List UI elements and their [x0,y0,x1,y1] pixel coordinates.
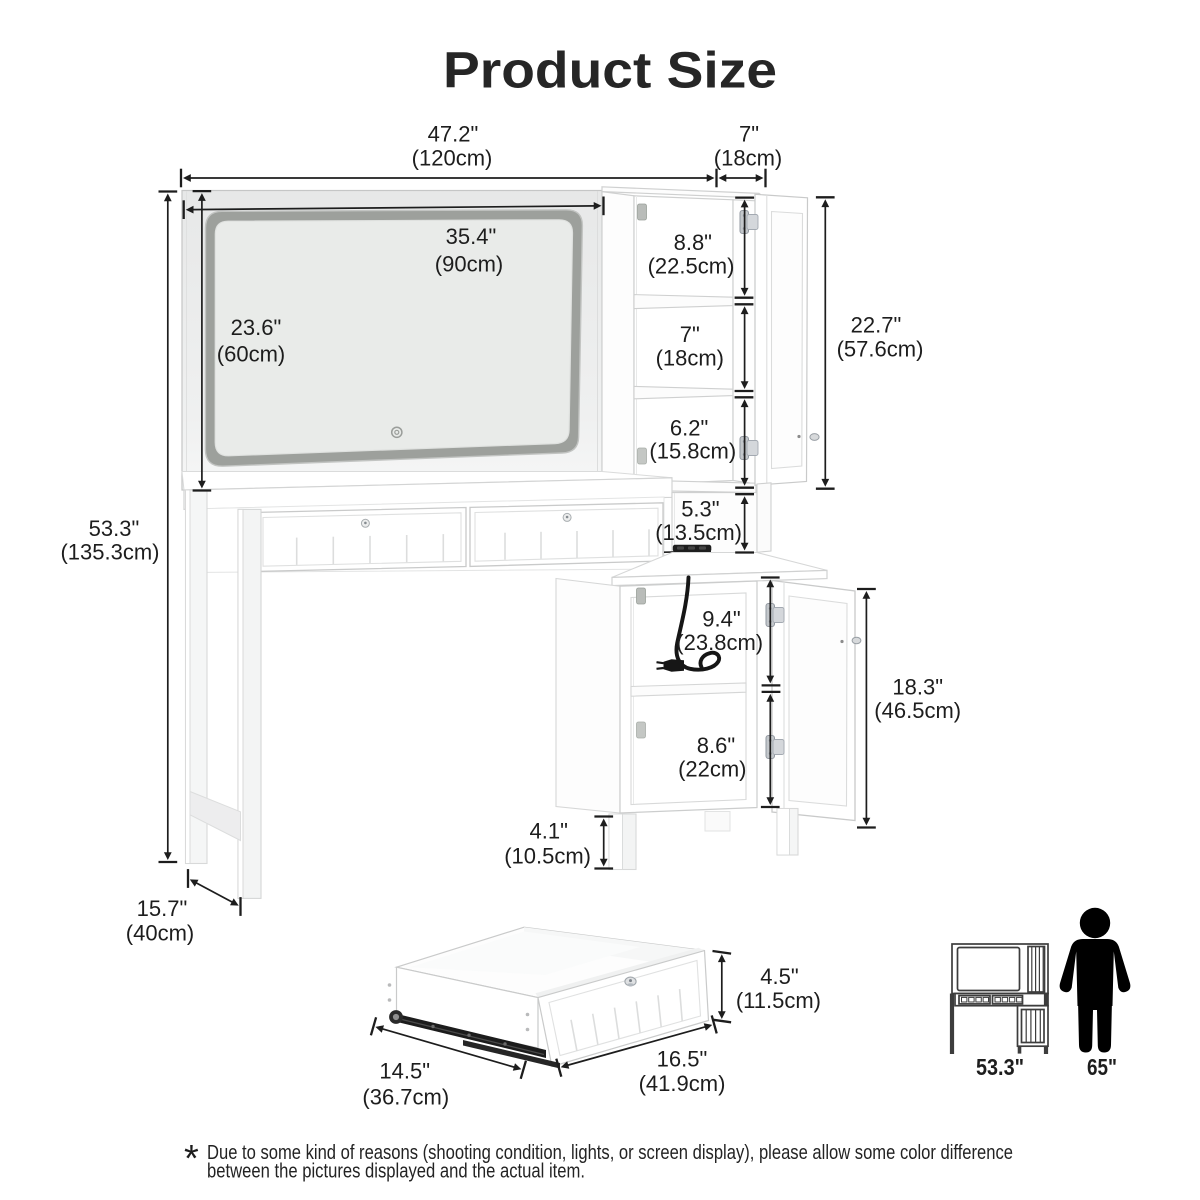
svg-text:(18cm): (18cm) [656,345,724,370]
svg-text:47.2": 47.2" [428,122,479,147]
svg-text:22.7": 22.7" [851,313,902,338]
svg-text:(15.8cm): (15.8cm) [649,439,736,464]
svg-text:35.4": 35.4" [446,224,497,249]
svg-text:(46.5cm): (46.5cm) [874,698,961,723]
svg-text:(11.5cm): (11.5cm) [736,988,821,1013]
svg-text:between the pictures displayed: between the pictures displayed and the a… [207,1160,585,1183]
svg-text:23.6": 23.6" [231,315,282,340]
svg-text:(40cm): (40cm) [126,921,194,946]
svg-text:65": 65" [1087,1054,1117,1080]
svg-text:(57.6cm): (57.6cm) [837,337,924,362]
svg-text:7": 7" [680,322,700,347]
svg-text:6.2": 6.2" [670,415,708,440]
svg-text:8.8": 8.8" [674,230,712,255]
svg-text:4.1": 4.1" [529,819,567,844]
svg-text:53.3": 53.3" [89,516,140,541]
svg-text:5.3": 5.3" [681,497,719,522]
svg-text:(90cm): (90cm) [435,252,503,277]
svg-text:18.3": 18.3" [892,674,943,699]
svg-text:4.5": 4.5" [760,964,798,989]
svg-text:16.5": 16.5" [657,1047,708,1072]
svg-text:(22cm): (22cm) [678,756,746,781]
svg-text:(10.5cm): (10.5cm) [504,844,591,869]
svg-text:14.5": 14.5" [379,1058,430,1083]
svg-text:15.7": 15.7" [137,896,188,921]
svg-text:(41.9cm): (41.9cm) [639,1071,726,1096]
svg-text:(18cm): (18cm) [714,146,782,171]
svg-text:(60cm): (60cm) [217,342,285,367]
svg-text:53.3": 53.3" [976,1054,1024,1080]
svg-text:(22.5cm): (22.5cm) [648,254,735,279]
svg-text:7": 7" [739,122,759,147]
svg-text:(135.3cm): (135.3cm) [60,540,159,565]
svg-text:(36.7cm): (36.7cm) [362,1085,449,1110]
svg-text:(23.8cm): (23.8cm) [676,630,763,655]
svg-text:Product Size: Product Size [443,42,777,99]
svg-text:(120cm): (120cm) [412,146,493,171]
svg-text:9.4": 9.4" [702,607,740,632]
svg-text:8.6": 8.6" [697,733,735,758]
svg-text:(13.5cm): (13.5cm) [655,520,742,545]
svg-text:*: * [184,1138,199,1180]
